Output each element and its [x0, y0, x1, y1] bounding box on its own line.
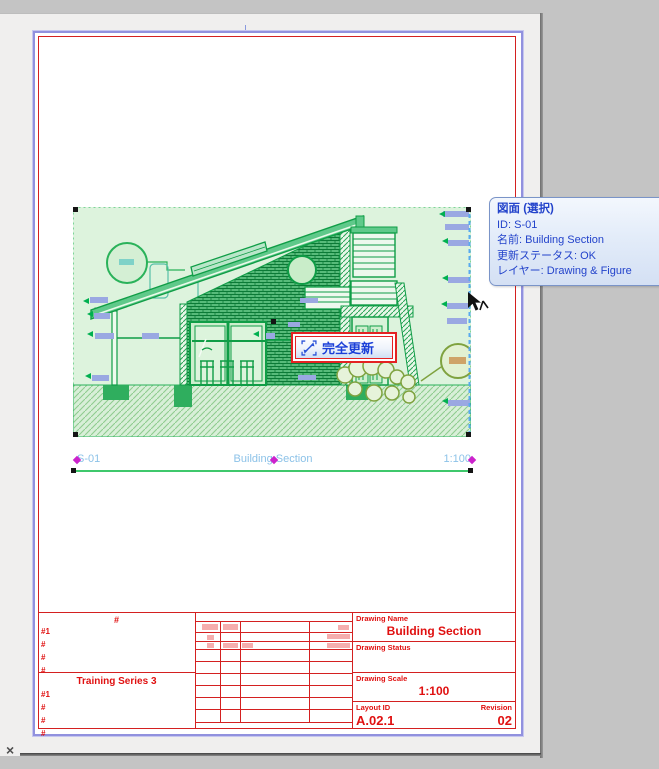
tooltip-name: 名前: Building Section	[497, 233, 659, 249]
full-update-label: 完全更新	[322, 338, 374, 357]
titleblock-project-header: Training Series 3	[38, 676, 195, 687]
drawing-viewport[interactable]	[73, 207, 471, 437]
layout-sheet[interactable]: S-01 Building Section 1:100	[33, 31, 523, 736]
layout-window: { "window": { "close": "×" }, "tooltip":…	[0, 0, 659, 769]
full-update-button[interactable]: 完全更新	[291, 332, 397, 363]
tooltip-layer: レイヤー: Drawing & Figure	[497, 264, 659, 280]
titleblock-company-rows: #1# ##	[41, 625, 50, 677]
tooltip-id: ID: S-01	[497, 218, 659, 234]
drawing-name-label: Drawing Name	[356, 614, 408, 623]
cursor-icon	[467, 292, 491, 318]
window-edge-bottom	[20, 753, 541, 756]
round-window	[288, 256, 316, 284]
revision-label: Revision	[352, 703, 512, 712]
tooltip-update-status: 更新ステータス: OK	[497, 249, 659, 265]
revision-value: 02	[352, 713, 512, 728]
drawing-status-label: Drawing Status	[356, 643, 411, 652]
drawing-scale-label: Drawing Scale	[356, 674, 407, 683]
drawing-name-value: Building Section	[352, 624, 516, 638]
titleblock-project-rows: #1# ##	[41, 688, 50, 740]
drawing-scale-value: 1:100	[352, 684, 516, 698]
title-line-handle-right[interactable]	[468, 468, 473, 473]
tooltip-title: 図面 (選択)	[497, 202, 659, 218]
window-wall	[190, 322, 266, 385]
title-line-handle-left[interactable]	[71, 468, 76, 473]
drawing-info-tooltip: 図面 (選択) ID: S-01 名前: Building Section 更新…	[489, 197, 659, 286]
titleblock-company-header: #	[38, 615, 195, 625]
drawing-title-line[interactable]	[73, 470, 473, 472]
window-edge-right	[540, 13, 543, 758]
refresh-icon	[301, 340, 317, 356]
close-icon[interactable]: ×	[6, 743, 14, 757]
